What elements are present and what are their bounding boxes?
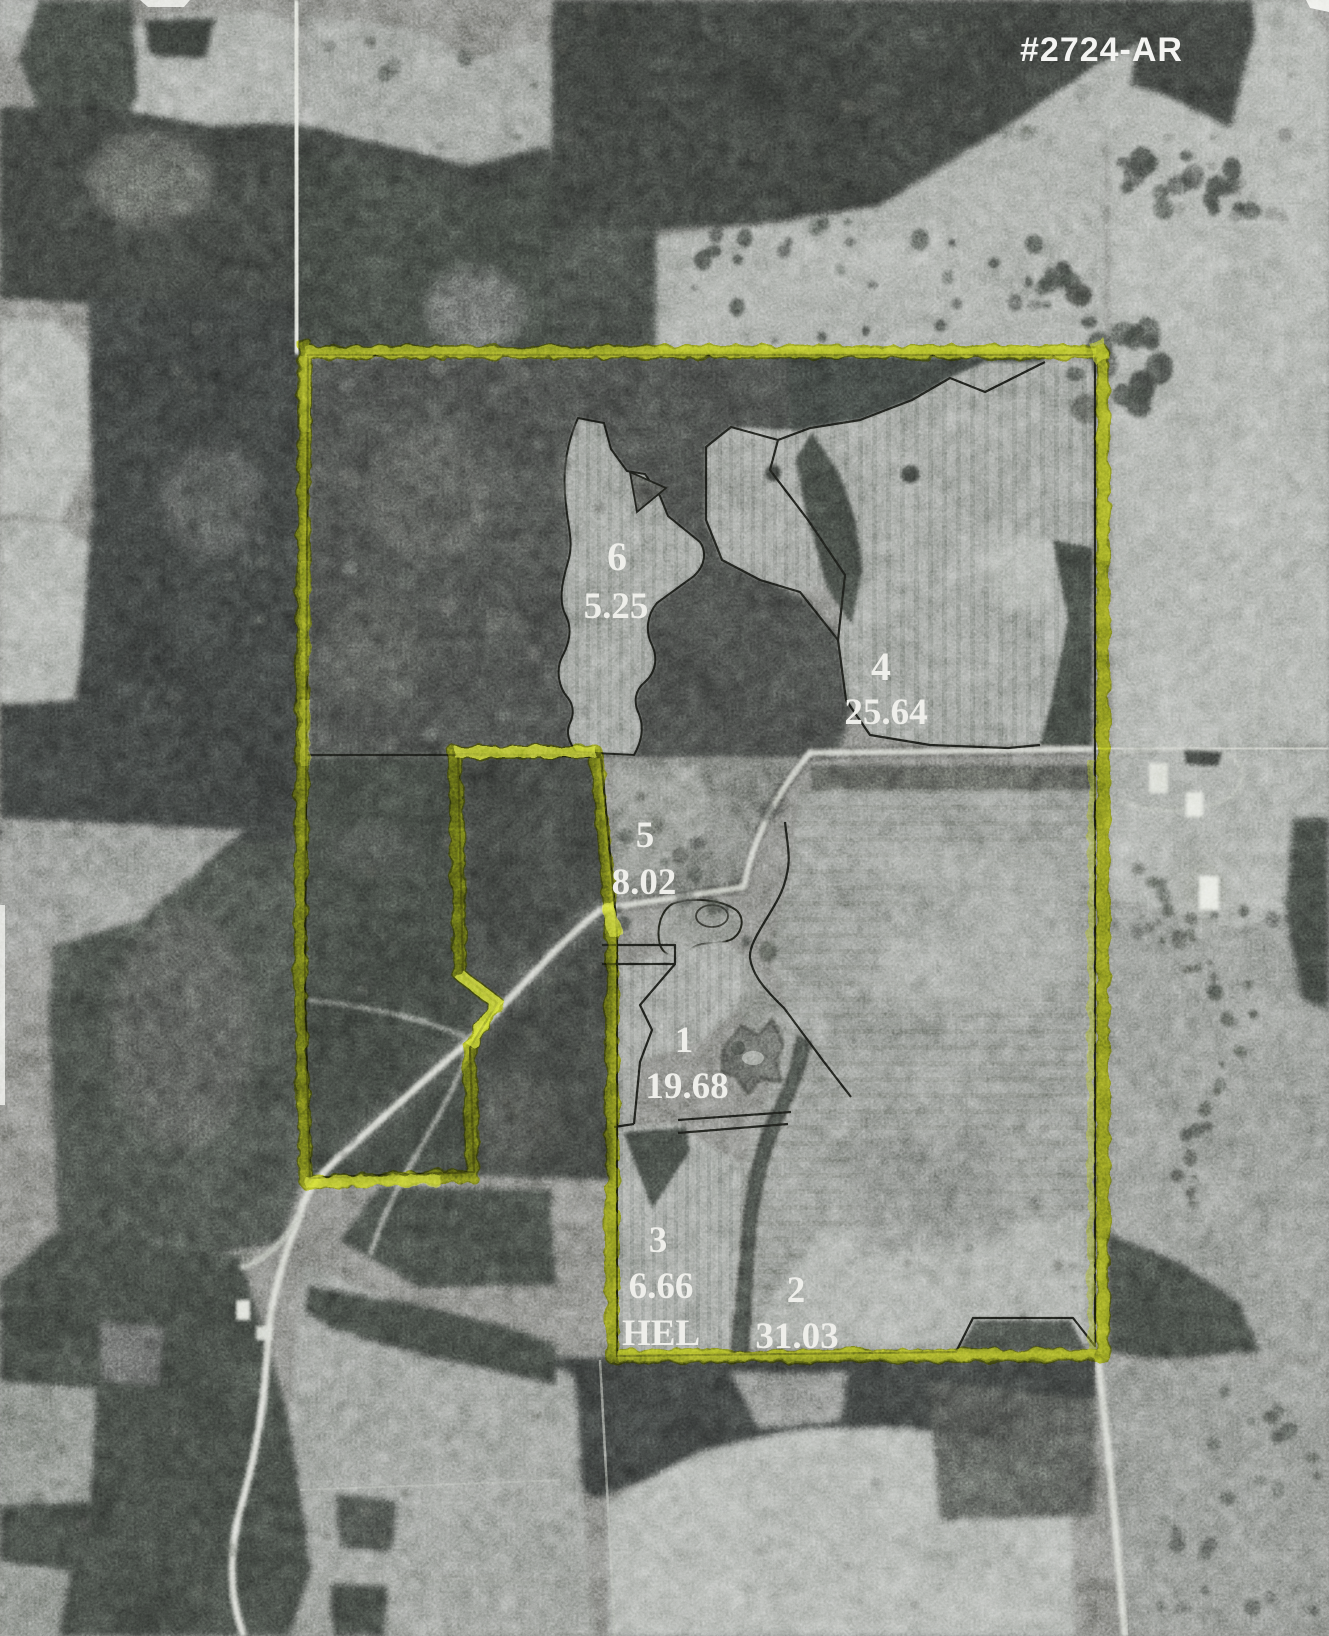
svg-text:6: 6: [607, 534, 627, 579]
svg-text:8.02: 8.02: [612, 862, 677, 903]
svg-text:5.25: 5.25: [584, 586, 649, 627]
svg-text:25.64: 25.64: [844, 692, 927, 733]
svg-text:19.68: 19.68: [645, 1066, 728, 1107]
svg-text:1: 1: [675, 1020, 694, 1061]
svg-text:6.66: 6.66: [629, 1266, 694, 1307]
svg-text:31.03: 31.03: [755, 1316, 838, 1357]
svg-text:5: 5: [636, 815, 655, 856]
svg-text:4: 4: [871, 644, 891, 689]
svg-text:HEL: HEL: [622, 1313, 700, 1354]
svg-text:3: 3: [649, 1220, 668, 1261]
svg-text:2: 2: [787, 1270, 806, 1311]
svg-text:#2724-AR: #2724-AR: [1020, 31, 1183, 69]
